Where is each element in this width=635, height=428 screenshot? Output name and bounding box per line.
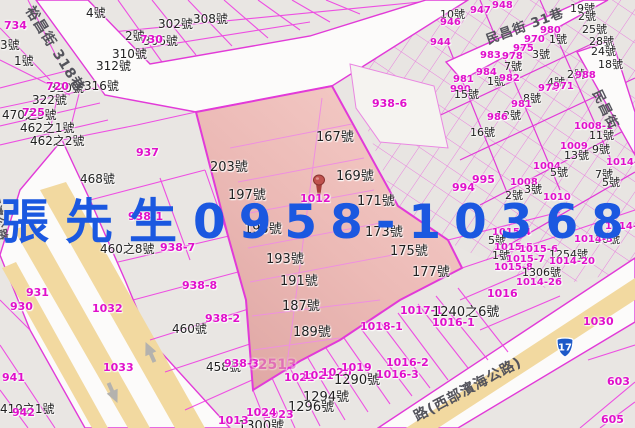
parcel-number-label: 986 <box>487 112 508 123</box>
phone-overlay-name: 張先生 <box>1 194 193 250</box>
parcel-number-label: 946 <box>440 17 461 28</box>
house-number-label: 16號 <box>470 124 495 140</box>
parcel-number-label: 1013 <box>218 414 249 427</box>
parcel-number-label: 938-6 <box>372 97 407 110</box>
parcel-number-label: 1014-8 <box>606 157 635 168</box>
cadastral-map-viewport[interactable]: 17 7343號1號4號2號306號730302號308號310號312號316… <box>0 0 635 428</box>
house-number-label: 308號 <box>193 10 228 27</box>
house-number-label: 203號 <box>210 156 248 175</box>
parcel-number-label: 1016-1 <box>432 316 475 329</box>
parcel-number-label: 1016-3 <box>376 368 419 381</box>
parcel-number-label: 944 <box>430 37 451 48</box>
parcel-number-label: 930 <box>10 300 33 313</box>
house-number-label: 3號 <box>0 36 20 53</box>
parcel-number-label: 1033 <box>103 361 134 374</box>
house-number-label: 15號 <box>454 86 479 102</box>
parcel-number-label: 988 <box>575 70 596 81</box>
house-number-label: 462之2號 <box>30 132 85 149</box>
house-number-label: 191號 <box>280 270 318 289</box>
parcel-number-label: 931 <box>26 286 49 299</box>
parcel-number-label: 725 <box>22 106 45 119</box>
parcel-number-label: 734 <box>4 19 27 32</box>
house-number-label: 302號 <box>158 15 193 32</box>
parcel-number-label: 947 <box>470 5 491 16</box>
parcel-number-label: 937 <box>136 146 159 159</box>
house-number-label: 1號 <box>549 31 567 47</box>
house-number-label: 3號 <box>532 46 550 62</box>
parcel-number-label: 938-8 <box>182 279 217 292</box>
parcel-number-label: 1018-1 <box>360 320 403 333</box>
house-number-label: 13號 <box>564 147 589 163</box>
parcel-number-label: 1014-26 <box>516 277 562 288</box>
house-number-label: 9號 <box>592 141 610 157</box>
house-number-label: 187號 <box>282 295 320 314</box>
parcel-number-label: 1032 <box>92 302 123 315</box>
parcel-number-label: 603 <box>607 375 630 388</box>
parcel-number-label: 1030 <box>583 315 614 328</box>
house-number-label: 177號 <box>412 261 450 280</box>
house-number-label: 18號 <box>598 56 623 72</box>
parcel-number-label: 982 <box>499 73 520 84</box>
parcel-number-label: 938-2 <box>205 312 240 325</box>
house-number-label: 312號 <box>96 57 131 74</box>
house-number-label: 189號 <box>293 321 331 340</box>
house-number-label: 1296號 <box>288 396 334 415</box>
house-number-label: 4號 <box>86 4 106 21</box>
parcel-number-label: 942 <box>12 406 35 419</box>
parcel-number-label: 1016 <box>487 287 518 300</box>
parcel-number-label: 941 <box>2 371 25 384</box>
house-number-label: 7號 <box>504 58 522 74</box>
parcel-number-label: 948 <box>492 0 513 11</box>
parcel-number-label: 971 <box>553 81 574 92</box>
house-number-label: 1號 <box>14 52 34 69</box>
parcel-number-label: 983 <box>480 50 501 61</box>
phone-overlay: 張先生0958-103680 <box>1 182 635 252</box>
house-number-label: 5號 <box>550 164 568 180</box>
parcel-number-label: 605 <box>601 413 624 426</box>
house-number-label: 460號 <box>172 320 207 337</box>
house-number-label: 167號 <box>316 126 354 145</box>
phone-overlay-number: 0958-103680 <box>193 195 635 250</box>
